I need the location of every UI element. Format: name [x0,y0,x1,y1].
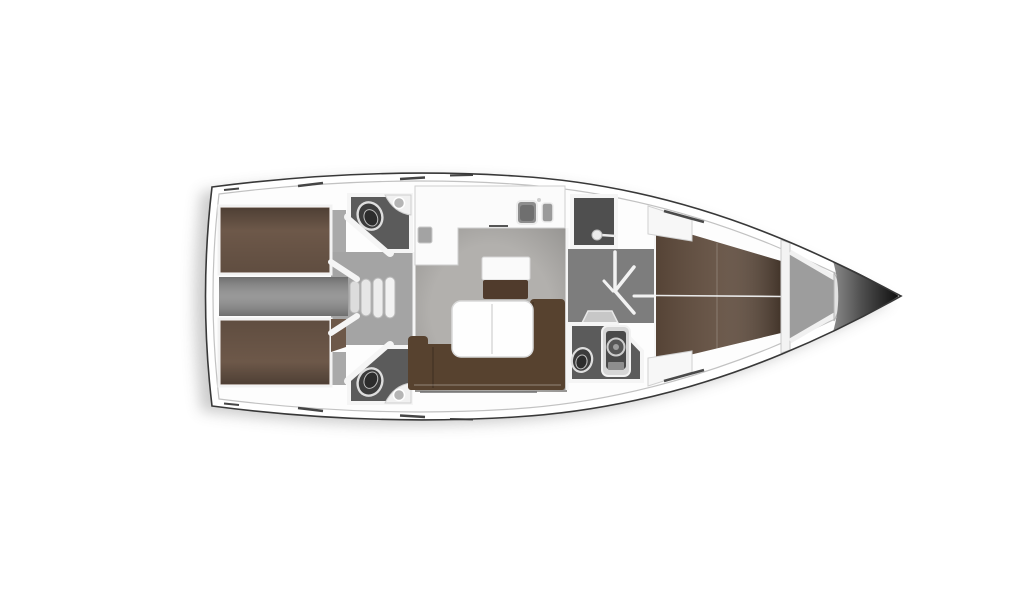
deck-hatch-mark [400,178,425,180]
deck-hatch-mark [400,416,425,418]
step-tread [373,278,383,318]
aft-port-cabin-floor [331,210,346,252]
aft-corridor-shading [219,277,348,316]
bow-bulkhead [781,240,790,353]
sofa-back [530,299,565,390]
aft-starboard-berth [219,319,346,386]
step-tread [361,279,371,316]
deck-hatch-mark [450,175,473,176]
cabin-step [582,311,618,323]
forward-cabin [648,206,898,386]
sink-basin [394,390,405,401]
salon-table [452,301,533,357]
aft-starboard-cabin-floor [331,352,346,385]
boat-floorplan-page [0,0,1024,600]
chart-bench-top [482,257,530,280]
forward-passage [568,249,656,323]
companionway-steps [350,277,395,318]
stove-icon [418,227,432,243]
chart-bench-seat [483,280,528,299]
vberth-center-seam [656,296,781,297]
aft-port-berth [219,206,331,274]
shower-column-icon [602,326,630,376]
salon-section [408,186,567,392]
step-tread [350,281,360,313]
bow-tip [833,261,898,332]
chart-bench [482,257,530,299]
aft-section [219,195,413,403]
floorplan-svg [0,0,1024,600]
aft-port-berth-shading [221,208,329,272]
sink-basin [394,198,405,209]
aft-starboard-berth-shading [221,321,329,384]
step-tread [385,277,395,318]
